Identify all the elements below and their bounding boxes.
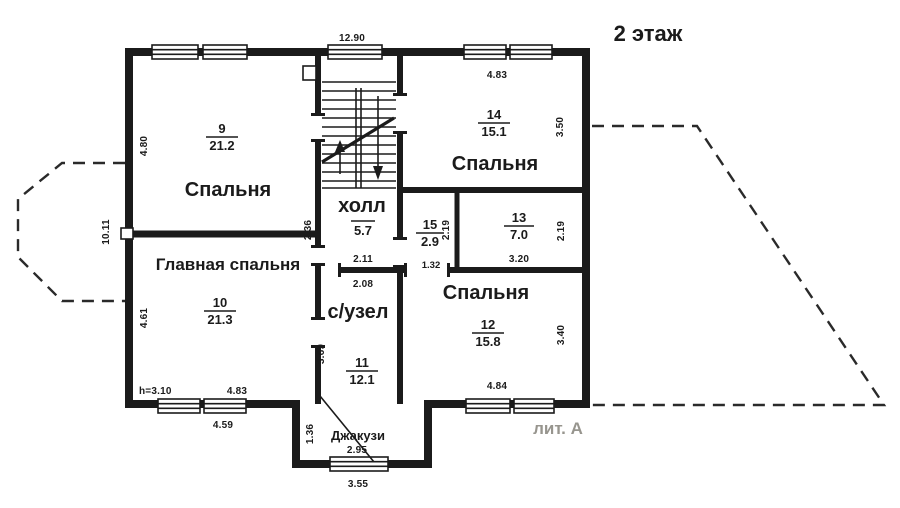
room-11-area: 12.1: [349, 372, 374, 387]
dim-r10-bottom-outer: 4.59: [213, 420, 234, 431]
room-13-area: 7.0: [510, 227, 528, 242]
room-11-number: 11: [355, 355, 369, 370]
room-12-number: 12: [481, 317, 495, 332]
window: [158, 399, 200, 413]
dim-r13-right: 2.19: [556, 221, 567, 242]
room-12-area: 15.8: [475, 334, 500, 349]
dim-r14-top: 4.83: [487, 70, 508, 81]
window: [328, 45, 382, 59]
room-12: Спальня 12 15.8: [443, 282, 529, 349]
room-15-number: 15: [423, 217, 437, 232]
dim-jacuzzi-bottom-outer: 3.55: [348, 479, 369, 490]
room-14: 14 15.1 Спальня: [452, 107, 538, 175]
hall-area: 5.7: [354, 223, 372, 238]
dim-hall-bottom: 2.11: [353, 254, 373, 265]
window: [152, 45, 198, 59]
room-15-area: 2.9: [421, 234, 439, 249]
dim-wc-top: 2.08: [353, 279, 374, 290]
dim-r12-bottom: 4.84: [487, 381, 508, 392]
stair-break-line: [322, 118, 394, 162]
room-13: 13 7.0: [504, 210, 534, 242]
window: [514, 399, 554, 413]
room-10: Главная спальня 10 21.3: [156, 255, 300, 327]
floor-plan-drawing: 2 этаж лит. А 9 21.2 Спальня Главная спа…: [0, 0, 900, 508]
dim-r12-right: 3.40: [556, 325, 567, 346]
dim-r10-bottom: 4.83: [227, 386, 248, 397]
room-15: 15 2.9: [416, 217, 444, 249]
dim-building-width-top: 12.90: [339, 33, 365, 44]
dim-r9-left: 4.80: [139, 136, 150, 157]
floor-title: 2 этаж: [614, 21, 683, 46]
room-9-area: 21.2: [209, 138, 234, 153]
room-14-area: 15.1: [481, 124, 506, 139]
room-11-wc: с/узел 11 12.1 Джакузи: [327, 301, 388, 443]
room-10-area: 21.3: [207, 312, 232, 327]
terrace-outline: [592, 126, 884, 405]
dim-hall-left: 2.36: [303, 220, 314, 241]
room-14-label: Спальня: [452, 153, 538, 175]
dim-building-height-left: 10.11: [101, 219, 112, 245]
room-13-number: 13: [512, 210, 526, 225]
dim-r15-bottom: 1.32: [422, 260, 441, 271]
window: [510, 45, 552, 59]
window: [203, 45, 247, 59]
dim-r10-left: 4.61: [139, 308, 150, 329]
room-9-number: 9: [218, 121, 225, 136]
room-11-label: с/узел: [327, 301, 388, 323]
room-9-label: Спальня: [185, 179, 271, 201]
room-10-label: Главная спальня: [156, 255, 300, 274]
dim-jacuzzi-left: 1.36: [305, 424, 316, 445]
dim-jacuzzi-width: 2.95: [347, 445, 368, 456]
window: [464, 45, 506, 59]
room-10-number: 10: [213, 295, 227, 310]
window: [466, 399, 510, 413]
jacuzzi-label: Джакузи: [331, 428, 385, 443]
dim-r14-right: 3.50: [555, 117, 566, 138]
hall-label: холл: [338, 195, 386, 217]
room-12-label: Спальня: [443, 282, 529, 304]
dim-wc-left: 3.69: [316, 344, 327, 365]
hall: холл 5.7: [338, 195, 386, 238]
floor-plan-canvas: 2 этаж лит. А 9 21.2 Спальня Главная спа…: [0, 0, 900, 508]
window: [330, 457, 388, 471]
litera-label: лит. А: [533, 419, 583, 438]
dim-ceiling-height: h=3.10: [139, 386, 172, 397]
room-9: 9 21.2 Спальня: [185, 121, 271, 201]
dim-r15-right: 2.19: [441, 220, 452, 241]
room-14-number: 14: [487, 107, 502, 122]
staircase: [322, 82, 396, 188]
window: [204, 399, 246, 413]
dim-r13-bottom: 3.20: [509, 254, 530, 265]
